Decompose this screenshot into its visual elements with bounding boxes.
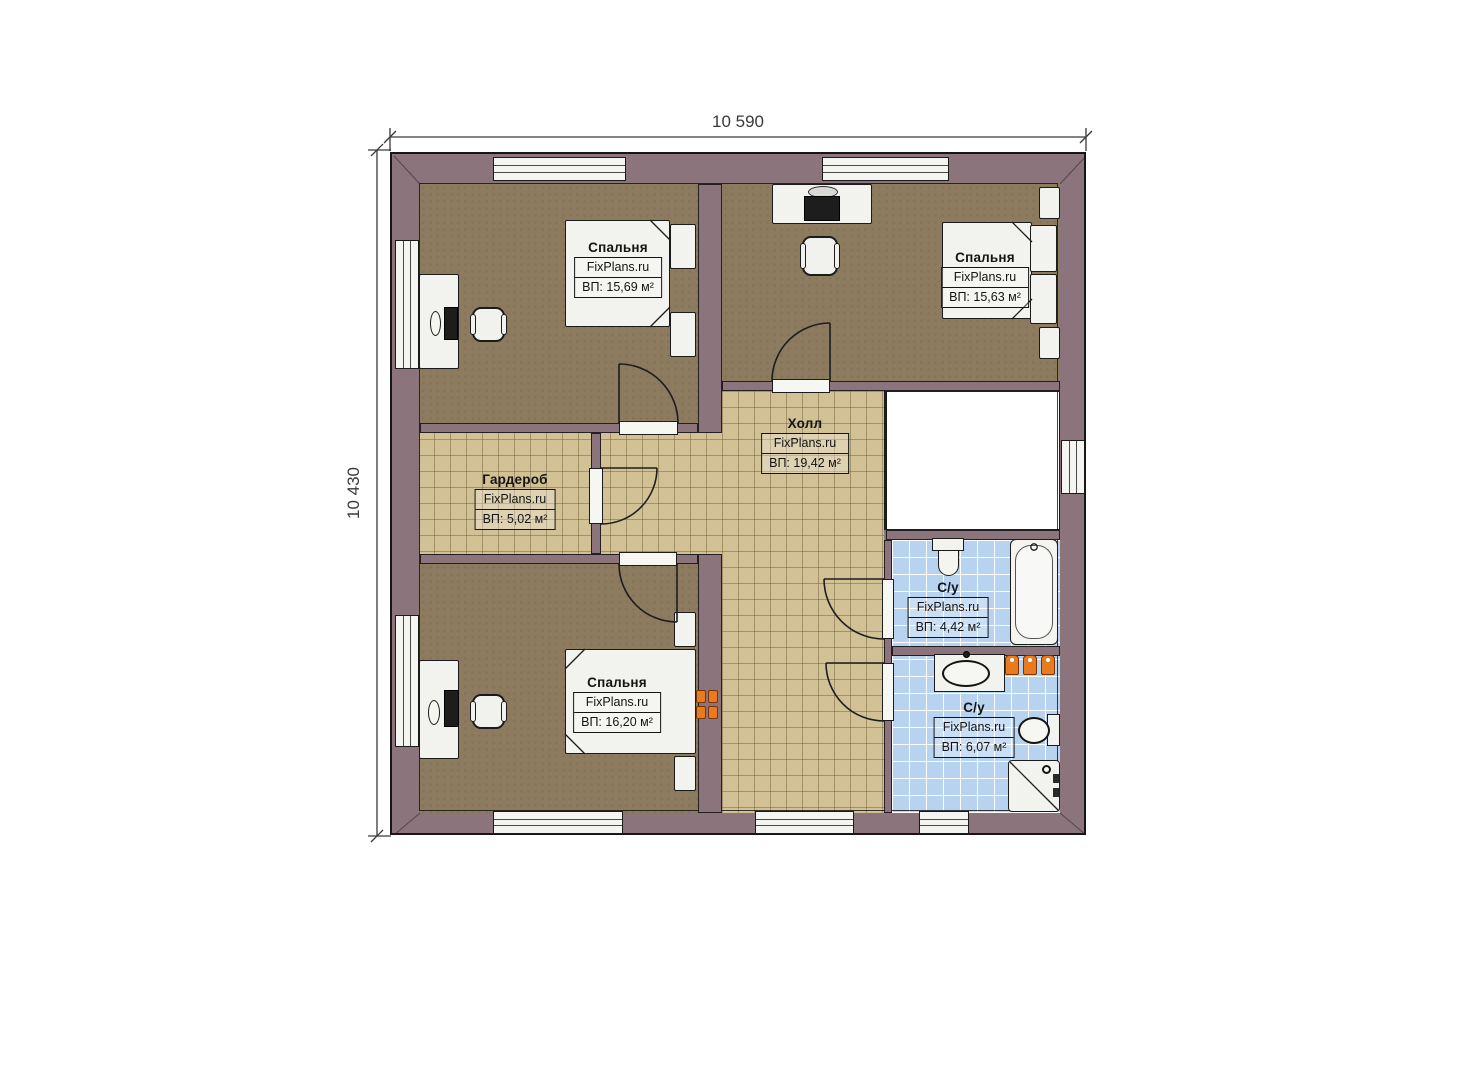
floor-plan-page: 10 590 10 430 — [0, 0, 1473, 1080]
radiator-icon — [696, 706, 706, 719]
room-brand: FixPlans.ru — [762, 434, 848, 453]
room-label-bathroom-bottom: С/у FixPlans.ru ВП: 6,07 м² — [934, 700, 1015, 758]
printer-icon — [804, 196, 840, 221]
door-opening-bathroom-bottom — [882, 663, 894, 721]
window-top-right — [822, 157, 949, 181]
door-opening-bathroom-top — [882, 579, 894, 639]
room-label-wardrobe: Гардероб FixPlans.ru ВП: 5,02 м² — [475, 472, 556, 530]
window-top-left — [493, 157, 626, 181]
wall-bedroom-bl-east — [698, 554, 722, 813]
bathtub — [1010, 539, 1058, 645]
dimension-width: 10 590 — [688, 112, 788, 132]
floor-plan: Спальня FixPlans.ru ВП: 15,69 м² Спальня… — [390, 152, 1086, 835]
shower-valve-icon — [1053, 788, 1059, 797]
room-name: Холл — [788, 416, 823, 431]
room-area: ВП: 15,69 м² — [575, 277, 661, 297]
nightstand — [670, 312, 696, 357]
room-name: Спальня — [955, 250, 1015, 265]
window-left-upper — [395, 240, 419, 369]
door-opening-bedroom-bl — [619, 552, 677, 566]
door-opening-wardrobe — [589, 468, 603, 524]
room-label-bathroom-top: С/у FixPlans.ru ВП: 4,42 м² — [908, 580, 989, 638]
room-name: Спальня — [587, 675, 647, 690]
office-chair — [472, 694, 505, 729]
window-bottom-right — [919, 811, 969, 834]
radiator-icon — [696, 690, 706, 703]
radiator-icon — [1041, 655, 1055, 675]
nightstand — [674, 612, 696, 647]
dimension-height: 10 430 — [344, 443, 364, 543]
wall-corner-miter — [1060, 813, 1086, 835]
window-left-lower — [395, 615, 419, 747]
door-opening-bedroom-tr — [772, 379, 830, 393]
room-brand: FixPlans.ru — [574, 693, 660, 712]
wall-corner-miter — [394, 156, 420, 184]
room-area: ВП: 4,42 м² — [909, 617, 988, 637]
wall-hall-whiteroom-divider — [884, 391, 886, 530]
nightstand — [1030, 274, 1057, 324]
room-label-bedroom-top-right: Спальня FixPlans.ru ВП: 15,63 м² — [941, 250, 1029, 308]
nightstand — [1030, 225, 1057, 272]
shower-valve-icon — [1053, 774, 1059, 783]
shower — [1008, 760, 1060, 812]
room-label-bedroom-bottom-left: Спальня FixPlans.ru ВП: 16,20 м² — [573, 675, 661, 733]
room-label-hall: Холл FixPlans.ru ВП: 19,42 м² — [761, 416, 849, 474]
radiator-icon — [1005, 655, 1019, 675]
nightstand — [674, 756, 696, 791]
room-brand: FixPlans.ru — [476, 490, 555, 509]
room-name: С/у — [963, 700, 985, 715]
faucet-icon — [963, 651, 970, 658]
keyboard-icon — [428, 700, 440, 725]
room-area: ВП: 15,63 м² — [942, 287, 1028, 307]
room-area: ВП: 6,07 м² — [935, 737, 1014, 757]
room-brand: FixPlans.ru — [942, 268, 1028, 287]
cabinet — [1039, 327, 1060, 359]
room-area: ВП: 5,02 м² — [476, 509, 555, 529]
room-area: ВП: 19,42 м² — [762, 453, 848, 473]
door-opening-bedroom-tl — [619, 421, 678, 435]
office-chair — [472, 307, 505, 342]
room-name: Спальня — [588, 240, 648, 255]
radiator-icon — [1023, 655, 1037, 675]
window-bottom-center — [755, 811, 854, 834]
room-brand: FixPlans.ru — [909, 598, 988, 617]
monitor-icon — [444, 690, 459, 727]
shower-drain-icon — [1042, 765, 1051, 774]
window-bottom-left — [493, 811, 623, 834]
room-area: ВП: 16,20 м² — [574, 712, 660, 732]
radiator-icon — [708, 690, 718, 703]
cabinet — [1039, 187, 1060, 219]
wall-between-top-bedrooms — [698, 184, 722, 433]
room-name: Гардероб — [482, 472, 547, 487]
wall-corner-miter — [1060, 156, 1086, 184]
toilet — [1018, 717, 1050, 744]
sink — [942, 660, 990, 687]
keyboard-icon — [430, 311, 441, 336]
room-brand: FixPlans.ru — [935, 718, 1014, 737]
nightstand — [670, 224, 696, 269]
office-chair — [802, 236, 838, 276]
window-right — [1061, 440, 1085, 494]
room-name: С/у — [937, 580, 959, 595]
toilet — [938, 550, 959, 576]
bathtub-basin — [1015, 545, 1053, 639]
room-brand: FixPlans.ru — [575, 258, 661, 277]
room-label-bedroom-top-left: Спальня FixPlans.ru ВП: 15,69 м² — [574, 240, 662, 298]
radiator-icon — [708, 706, 718, 719]
monitor-icon — [444, 307, 458, 340]
wall-corner-miter — [394, 813, 420, 835]
